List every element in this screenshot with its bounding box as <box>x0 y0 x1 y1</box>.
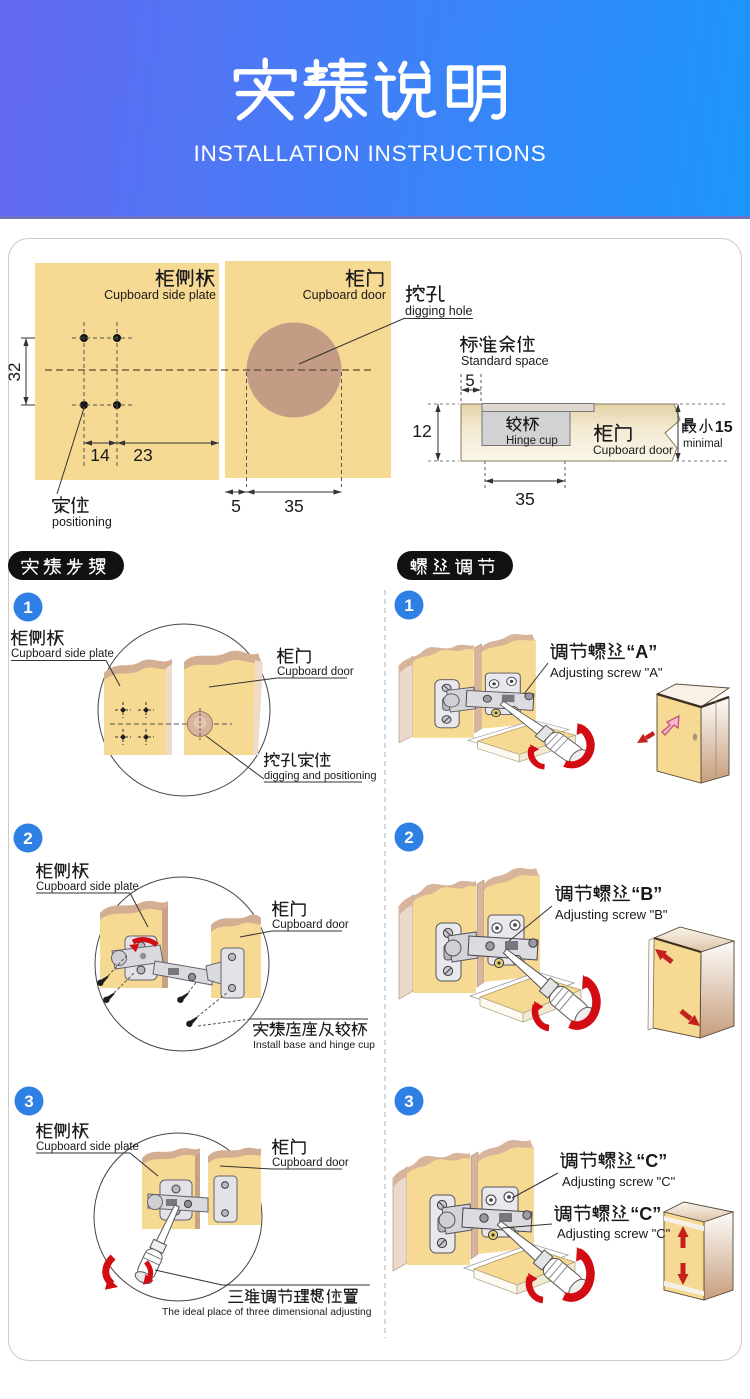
svg-text:digging hole: digging hole <box>405 304 472 318</box>
svg-text:1: 1 <box>23 598 32 617</box>
svg-text:5: 5 <box>231 496 241 516</box>
svg-text:Cupboard side plate: Cupboard side plate <box>11 648 114 660</box>
svg-text:15: 15 <box>715 419 733 436</box>
svg-text:23: 23 <box>133 445 152 465</box>
svg-text:Cupboard door: Cupboard door <box>277 666 354 678</box>
svg-text:Cupboard door: Cupboard door <box>593 443 673 457</box>
svg-text:Cupboard side plate: Cupboard side plate <box>36 1141 139 1153</box>
svg-text:3: 3 <box>404 1092 413 1111</box>
svg-text:Cupboard door: Cupboard door <box>272 919 349 931</box>
svg-text:Adjusting screw "A": Adjusting screw "A" <box>550 665 663 680</box>
svg-text:Cupboard door: Cupboard door <box>303 288 386 302</box>
svg-text:Standard space: Standard space <box>461 354 549 368</box>
svg-text:Cupboard door: Cupboard door <box>272 1157 349 1169</box>
svg-text:Cupboard side plate: Cupboard side plate <box>36 881 139 893</box>
svg-text:minimal: minimal <box>683 438 723 450</box>
svg-text:3: 3 <box>24 1092 33 1111</box>
svg-text:“C”: “C” <box>636 1151 667 1171</box>
svg-text:35: 35 <box>515 489 534 509</box>
svg-text:digging and positioning: digging and positioning <box>264 770 377 782</box>
svg-text:35: 35 <box>284 496 303 516</box>
svg-text:INSTALLATION INSTRUCTIONS: INSTALLATION INSTRUCTIONS <box>193 141 546 166</box>
svg-text:Adjusting screw "C": Adjusting screw "C" <box>562 1174 676 1189</box>
svg-text:1: 1 <box>404 596 413 615</box>
svg-text:5: 5 <box>465 371 474 390</box>
svg-text:Adjusting screw "B": Adjusting screw "B" <box>555 907 668 922</box>
svg-text:Hinge cup: Hinge cup <box>506 435 558 447</box>
svg-text:The ideal place of three dimen: The ideal place of three dimensional adj… <box>162 1307 372 1318</box>
svg-text:“C”: “C” <box>630 1204 661 1224</box>
svg-text:Install base and hinge cup: Install base and hinge cup <box>253 1039 375 1051</box>
svg-text:Adjusting screw "C": Adjusting screw "C" <box>557 1226 671 1241</box>
svg-text:“B”: “B” <box>631 884 662 904</box>
svg-text:12: 12 <box>412 421 431 441</box>
svg-text:Cupboard side plate: Cupboard side plate <box>104 288 216 302</box>
svg-text:14: 14 <box>90 445 110 465</box>
svg-text:2: 2 <box>404 828 413 847</box>
svg-text:positioning: positioning <box>52 515 112 529</box>
svg-text:“A”: “A” <box>626 642 657 662</box>
svg-text:32: 32 <box>5 363 24 382</box>
svg-text:2: 2 <box>23 829 32 848</box>
